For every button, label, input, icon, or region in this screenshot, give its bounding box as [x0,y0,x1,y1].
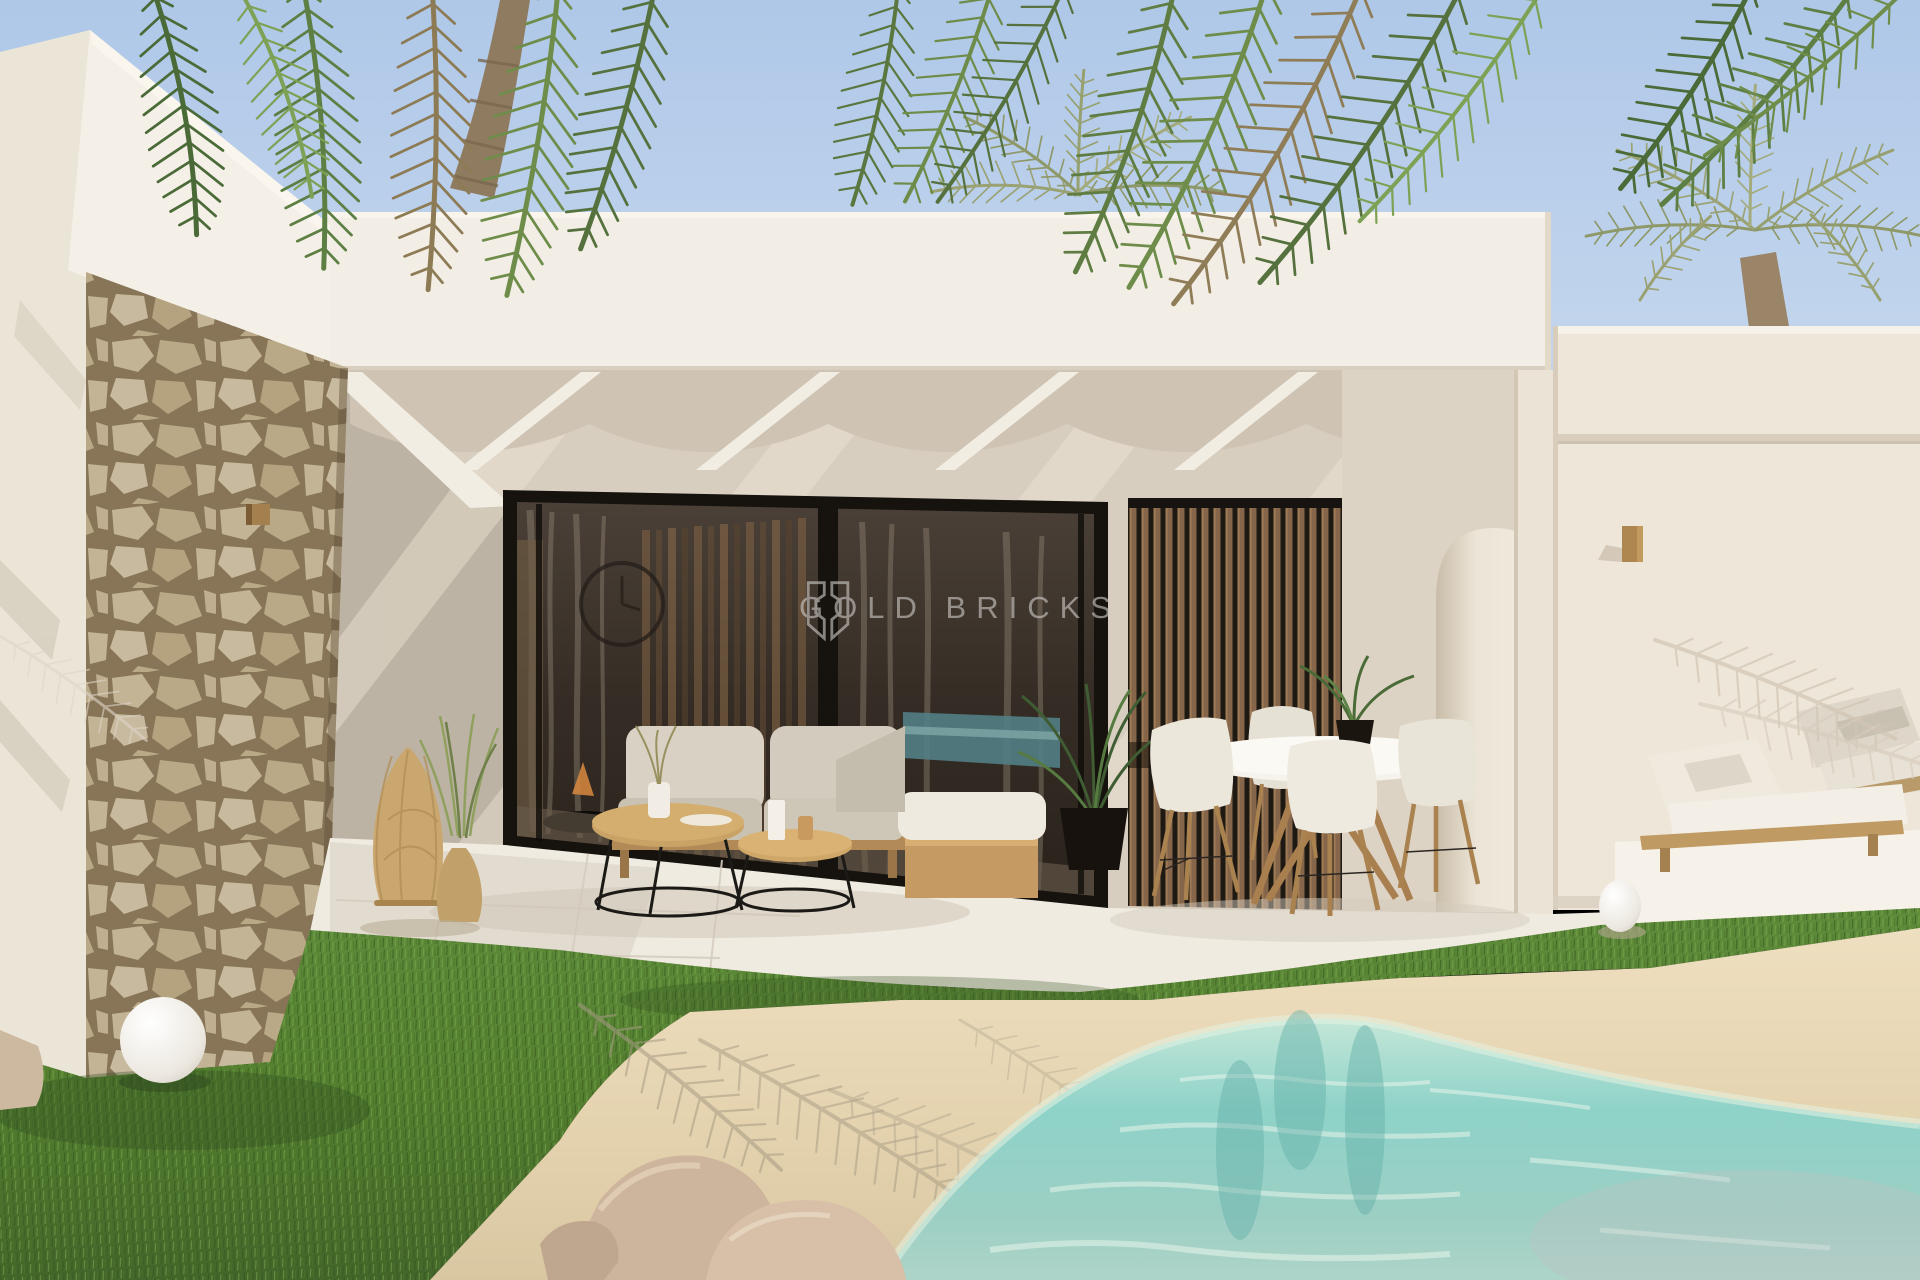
lantern-base [374,900,442,906]
scene-canvas [0,0,1920,1280]
fascia-right-edge [1545,212,1551,372]
sphere-lamp-large [120,997,206,1083]
sconce-shadow-side [246,504,252,525]
furniture-shadow [430,886,970,938]
plant-pot [1060,808,1128,870]
decor-cup [798,816,813,840]
sphere-lamp-small [1599,880,1641,932]
villa-render-photo: GOLD BRICKS [0,0,1920,1280]
wood-slat-screen [1128,498,1342,910]
chaise-cushion [898,792,1046,840]
sofa-leg [888,850,897,878]
dining-chair [1150,718,1233,813]
decor-card [768,800,785,840]
arch-column [1514,370,1553,918]
right-wall-corner [1553,326,1558,910]
slat-panel [1128,504,1342,910]
right-wall-parapet-edge [1553,326,1920,334]
arch-column-edge [1514,370,1518,918]
dining-chair [1287,739,1377,833]
sofa-leg [620,850,629,878]
lantern-shadow [360,919,480,937]
chaise-wood-box [905,838,1038,898]
vase [648,782,670,818]
dining-chair [1398,719,1477,807]
wall-groove [1553,434,1920,441]
tray [680,814,732,826]
dining-shadow [1110,898,1530,942]
slat-header [1128,498,1342,508]
wall-groove-shadow [1553,441,1920,444]
